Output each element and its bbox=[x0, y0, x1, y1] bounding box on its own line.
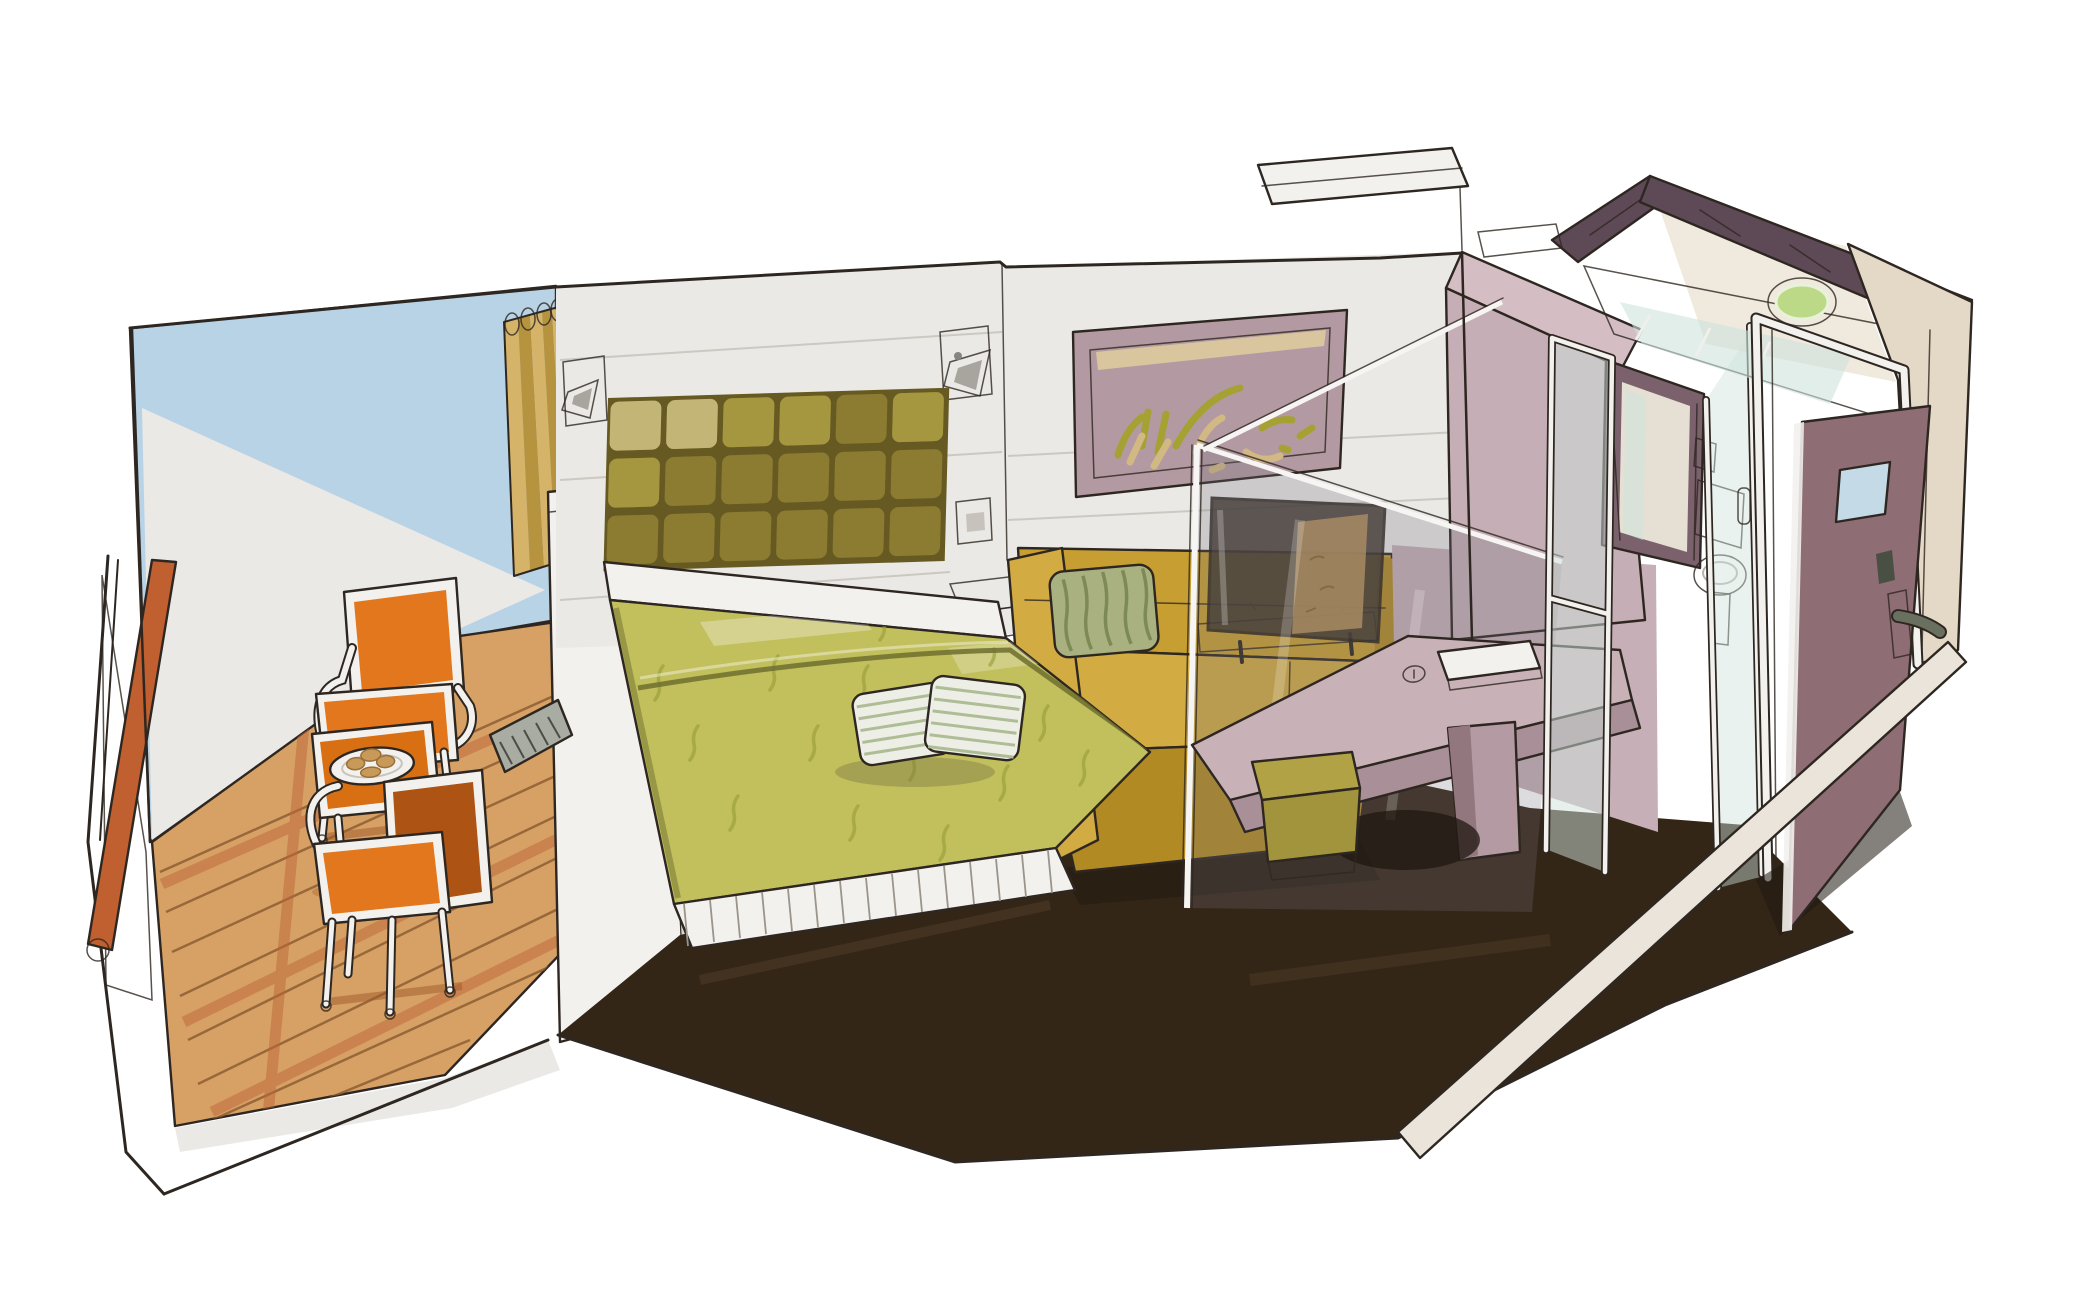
chair-back bbox=[354, 590, 453, 692]
door-window bbox=[1836, 462, 1890, 522]
headboard bbox=[603, 388, 949, 572]
illustration-canvas bbox=[0, 0, 2100, 1299]
pillow-2 bbox=[924, 675, 1027, 762]
ledge bbox=[1478, 224, 1562, 257]
cabin-illustration bbox=[0, 0, 2100, 1299]
pillow-shadow bbox=[835, 757, 995, 787]
wardrobe-lid bbox=[1258, 148, 1468, 204]
wardrobe-top bbox=[1258, 148, 1562, 257]
sofa-cushion bbox=[1049, 564, 1160, 659]
door-lock bbox=[1876, 550, 1895, 584]
bathroom-doorway bbox=[1602, 360, 1704, 568]
vessel-sink bbox=[1768, 278, 1836, 326]
